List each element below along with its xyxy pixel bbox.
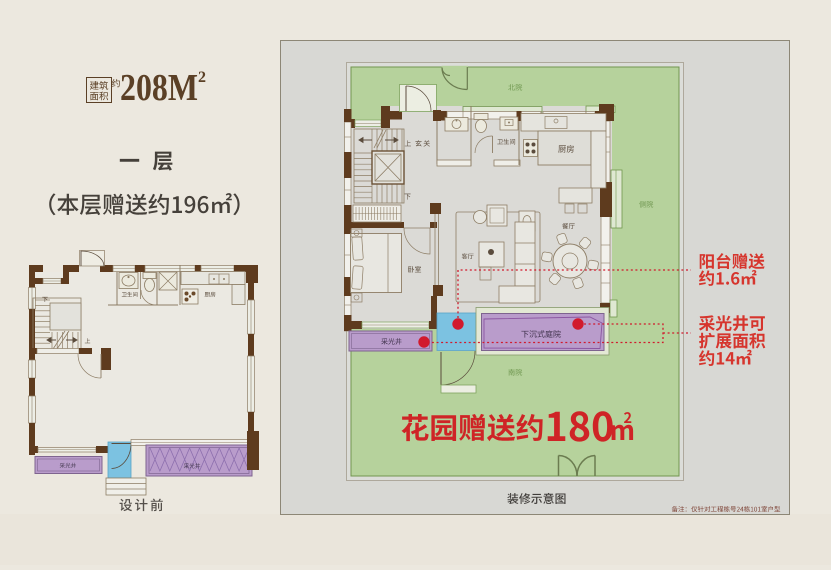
svg-text:2: 2 [198, 69, 206, 86]
svg-text:208M: 208M [120, 67, 198, 109]
